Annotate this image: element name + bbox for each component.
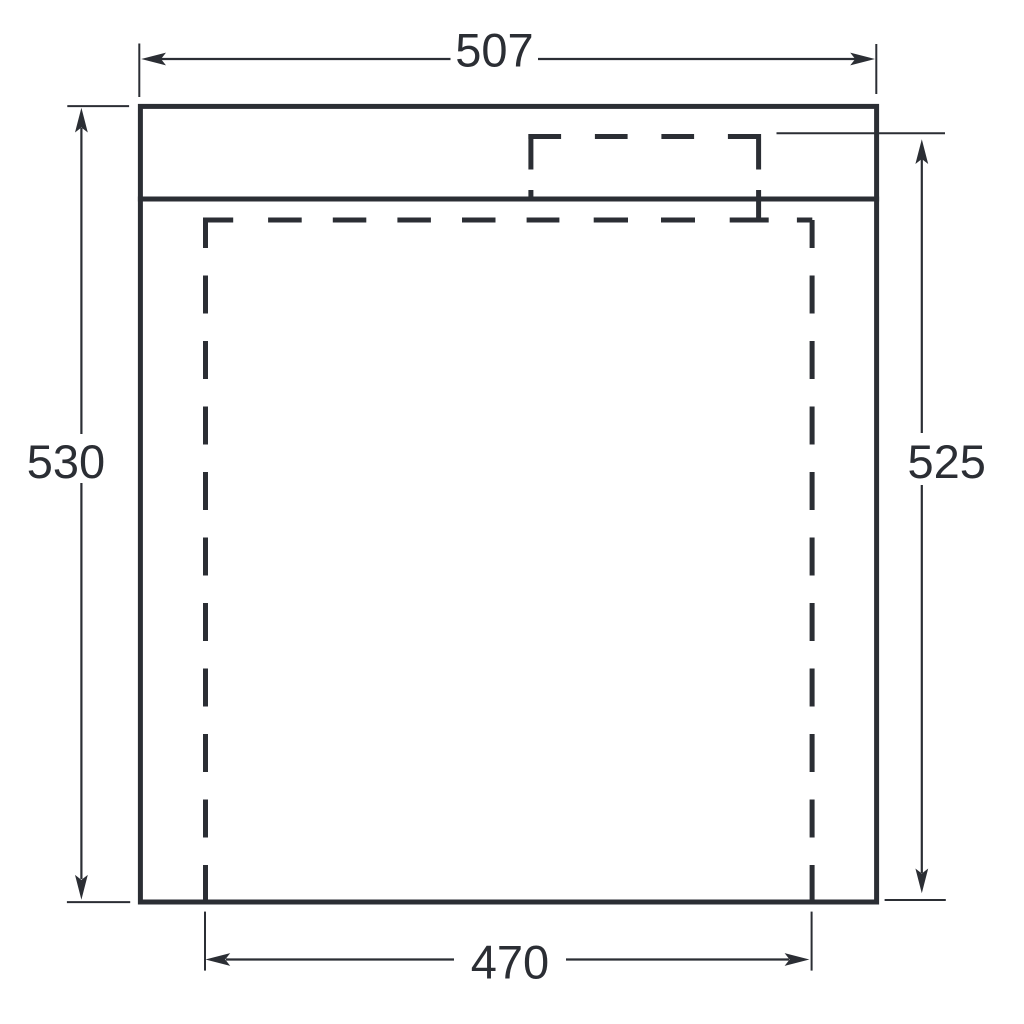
svg-text:525: 525 — [907, 435, 985, 488]
svg-text:470: 470 — [471, 936, 549, 989]
svg-text:507: 507 — [455, 24, 533, 77]
svg-text:530: 530 — [27, 435, 105, 488]
